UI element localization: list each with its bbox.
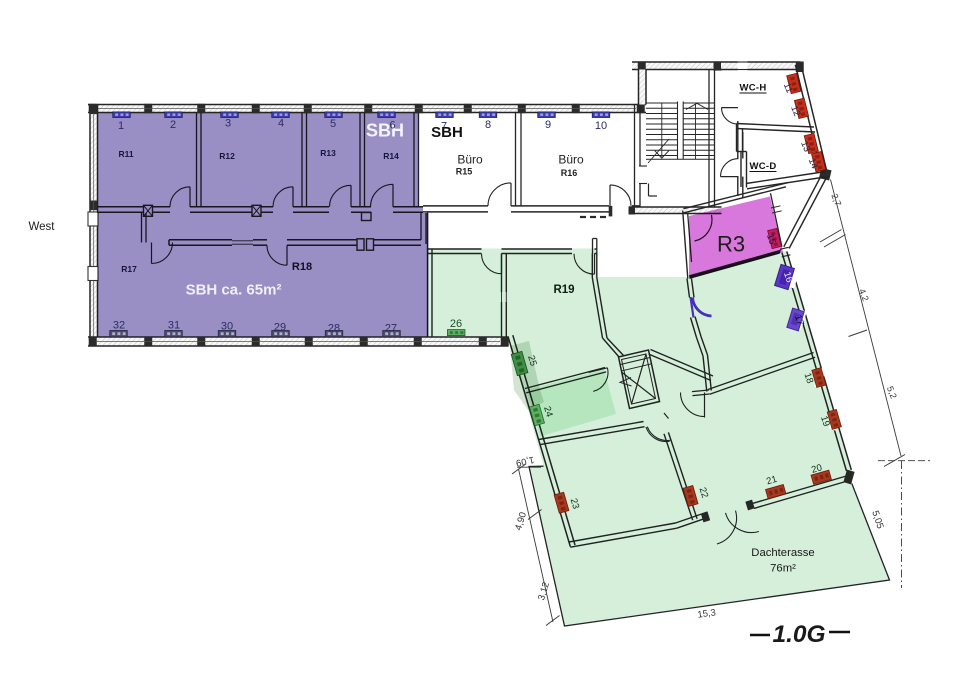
svg-text:West: West bbox=[29, 221, 56, 233]
svg-text:28: 28 bbox=[328, 323, 340, 335]
svg-text:R13: R13 bbox=[320, 148, 336, 158]
svg-text:4: 4 bbox=[278, 118, 284, 130]
svg-text:R16: R16 bbox=[561, 168, 578, 178]
svg-text:5: 5 bbox=[330, 118, 336, 130]
svg-text:6: 6 bbox=[389, 120, 395, 132]
svg-text:Büro: Büro bbox=[457, 153, 483, 167]
svg-text:R3: R3 bbox=[717, 232, 745, 257]
svg-text:30: 30 bbox=[221, 321, 233, 333]
svg-text:WC-D: WC-D bbox=[749, 161, 776, 172]
svg-text:SBH: SBH bbox=[366, 121, 404, 141]
svg-text:2: 2 bbox=[170, 119, 176, 131]
svg-text:R18: R18 bbox=[292, 261, 312, 273]
svg-text:26: 26 bbox=[450, 318, 462, 330]
svg-text:R15: R15 bbox=[456, 167, 473, 177]
svg-text:R19: R19 bbox=[553, 284, 574, 296]
svg-text:3: 3 bbox=[225, 118, 231, 130]
svg-text:R12: R12 bbox=[219, 151, 235, 161]
svg-text:R17: R17 bbox=[121, 264, 137, 274]
svg-text:SBH: SBH bbox=[431, 124, 463, 141]
svg-text:8: 8 bbox=[485, 119, 491, 131]
svg-text:1: 1 bbox=[118, 120, 124, 132]
svg-text:29: 29 bbox=[274, 322, 286, 334]
svg-text:10: 10 bbox=[595, 120, 607, 132]
svg-text:27: 27 bbox=[385, 323, 397, 335]
svg-text:R14: R14 bbox=[383, 151, 399, 161]
svg-text:R11: R11 bbox=[118, 149, 133, 159]
svg-text:Büro: Büro bbox=[558, 153, 584, 167]
svg-text:1.0G: 1.0G bbox=[772, 621, 825, 648]
svg-text:31: 31 bbox=[168, 320, 180, 332]
svg-text:SBH ca. 65m²: SBH ca. 65m² bbox=[186, 282, 282, 299]
svg-text:76m²: 76m² bbox=[770, 563, 796, 575]
svg-text:32: 32 bbox=[113, 320, 125, 332]
svg-text:WC-H: WC-H bbox=[739, 83, 766, 94]
svg-text:Dachterasse: Dachterasse bbox=[751, 547, 814, 559]
svg-text:9: 9 bbox=[545, 119, 551, 131]
